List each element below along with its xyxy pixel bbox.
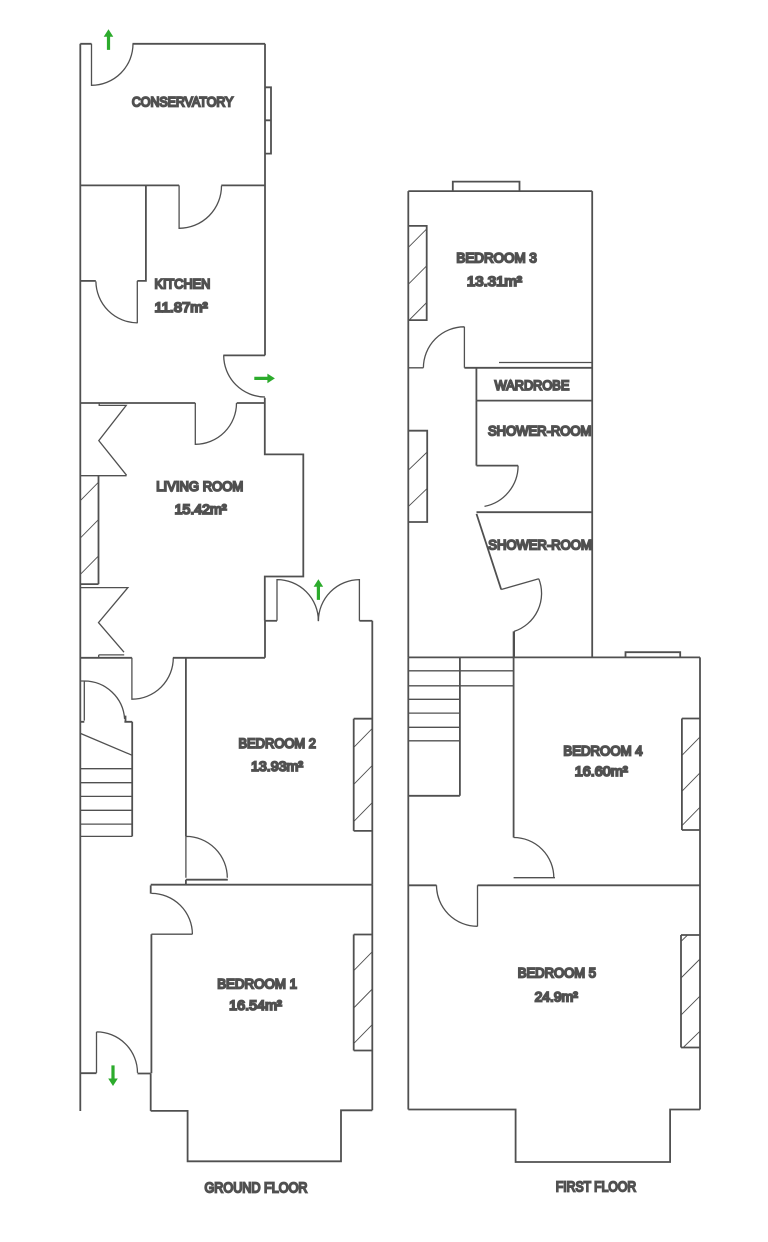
svg-text:BEDROOM 5: BEDROOM 5	[518, 966, 596, 981]
svg-text:BEDROOM 4: BEDROOM 4	[563, 743, 643, 758]
svg-text:GROUND FLOOR: GROUND FLOOR	[204, 1180, 307, 1196]
svg-text:WARDROBE: WARDROBE	[495, 378, 570, 393]
svg-text:BEDROOM 2: BEDROOM 2	[238, 736, 316, 751]
svg-text:KITCHEN: KITCHEN	[155, 277, 211, 292]
svg-text:SHOWER-ROOM: SHOWER-ROOM	[488, 538, 591, 553]
svg-text:16.54m²: 16.54m²	[229, 998, 282, 1013]
svg-text:LIVING ROOM: LIVING ROOM	[156, 479, 243, 494]
svg-text:BEDROOM 1: BEDROOM 1	[217, 977, 297, 992]
svg-text:CONSERVATORY: CONSERVATORY	[132, 95, 234, 110]
svg-text:13.93m²: 13.93m²	[251, 759, 304, 774]
svg-text:SHOWER-ROOM: SHOWER-ROOM	[488, 423, 591, 438]
svg-text:16.60m²: 16.60m²	[575, 764, 628, 779]
svg-text:BEDROOM 3: BEDROOM 3	[456, 251, 536, 266]
svg-text:11.87m²: 11.87m²	[155, 300, 209, 315]
svg-text:15.42m²: 15.42m²	[175, 502, 228, 517]
svg-text:13.31m²: 13.31m²	[467, 274, 523, 289]
svg-text:FIRST FLOOR: FIRST FLOOR	[556, 1180, 636, 1196]
svg-text:24.9m²: 24.9m²	[535, 989, 579, 1004]
